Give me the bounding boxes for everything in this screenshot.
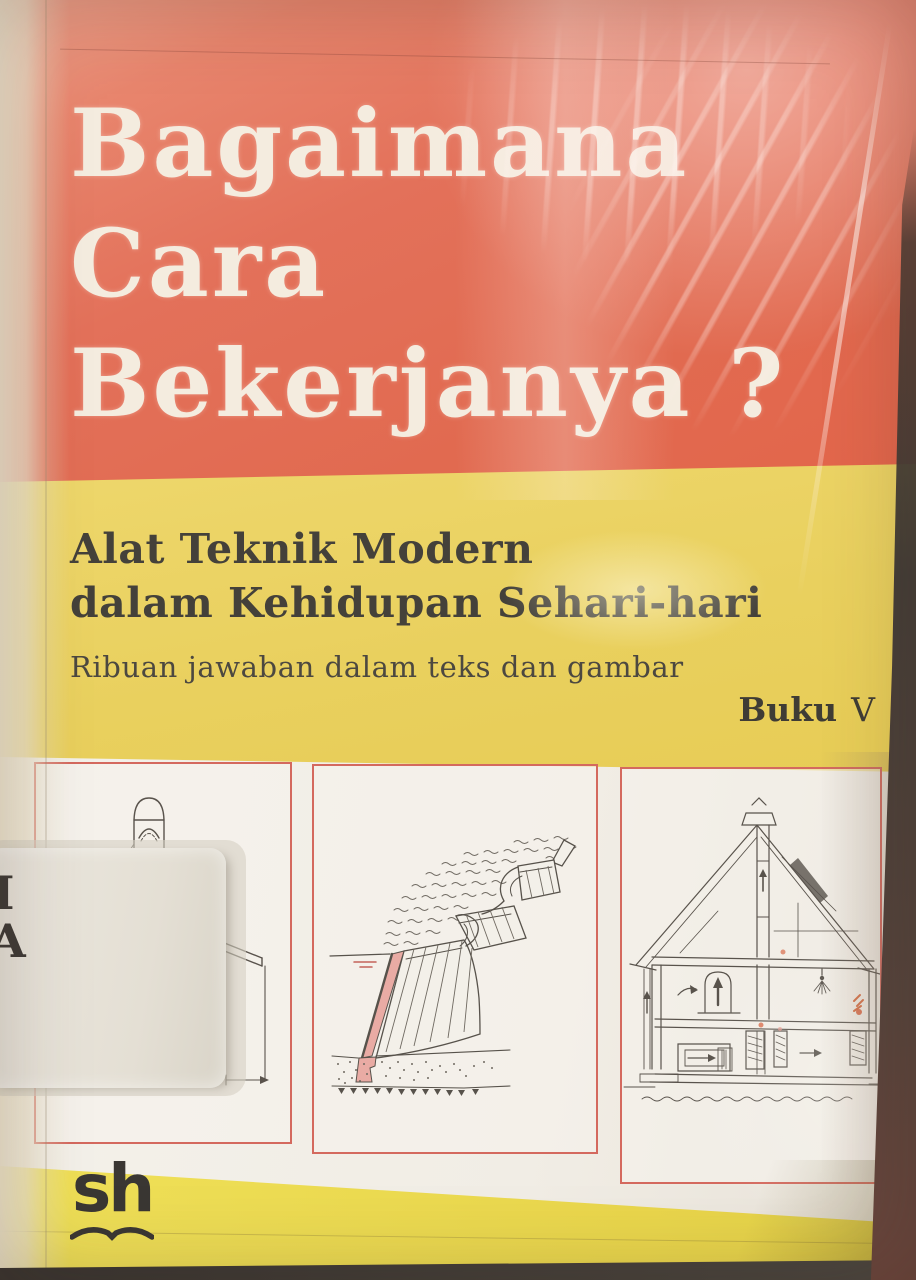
open-book-swoosh-icon	[70, 1224, 154, 1242]
house-heating-sketch	[622, 769, 880, 1182]
title-line-1: Bagaimana	[70, 84, 786, 204]
subtitle-line-1: Alat Teknik Modern	[70, 522, 762, 576]
title-line-3: Bekerjanya ?	[70, 324, 786, 444]
stepped-dam-sketch	[314, 766, 596, 1152]
edition-label: BukuV	[738, 690, 875, 729]
edition-numeral: V	[851, 690, 875, 729]
spine-label-letter-top: I	[0, 870, 15, 916]
book-subtitle: Alat Teknik Modern dalam Kehidupan Sehar…	[70, 522, 762, 630]
edition-word: Buku	[738, 690, 837, 729]
book-tagline: Ribuan jawaban dalam teks dan gambar	[70, 650, 684, 684]
illustration-panel-2	[312, 764, 598, 1154]
subtitle-line-2: dalam Kehidupan Sehari-hari	[70, 576, 762, 630]
illustration-panel-3	[620, 767, 882, 1184]
library-sticker	[0, 848, 226, 1088]
spine-label-letter-bottom: A	[0, 918, 26, 964]
publisher-logo: sh	[72, 1156, 152, 1222]
title-line-2: Cara	[70, 204, 786, 324]
book-title: Bagaimana Cara Bekerjanya ?	[70, 84, 786, 444]
book-cover-photo: Bagaimana Cara Bekerjanya ? Alat Teknik …	[0, 0, 916, 1280]
